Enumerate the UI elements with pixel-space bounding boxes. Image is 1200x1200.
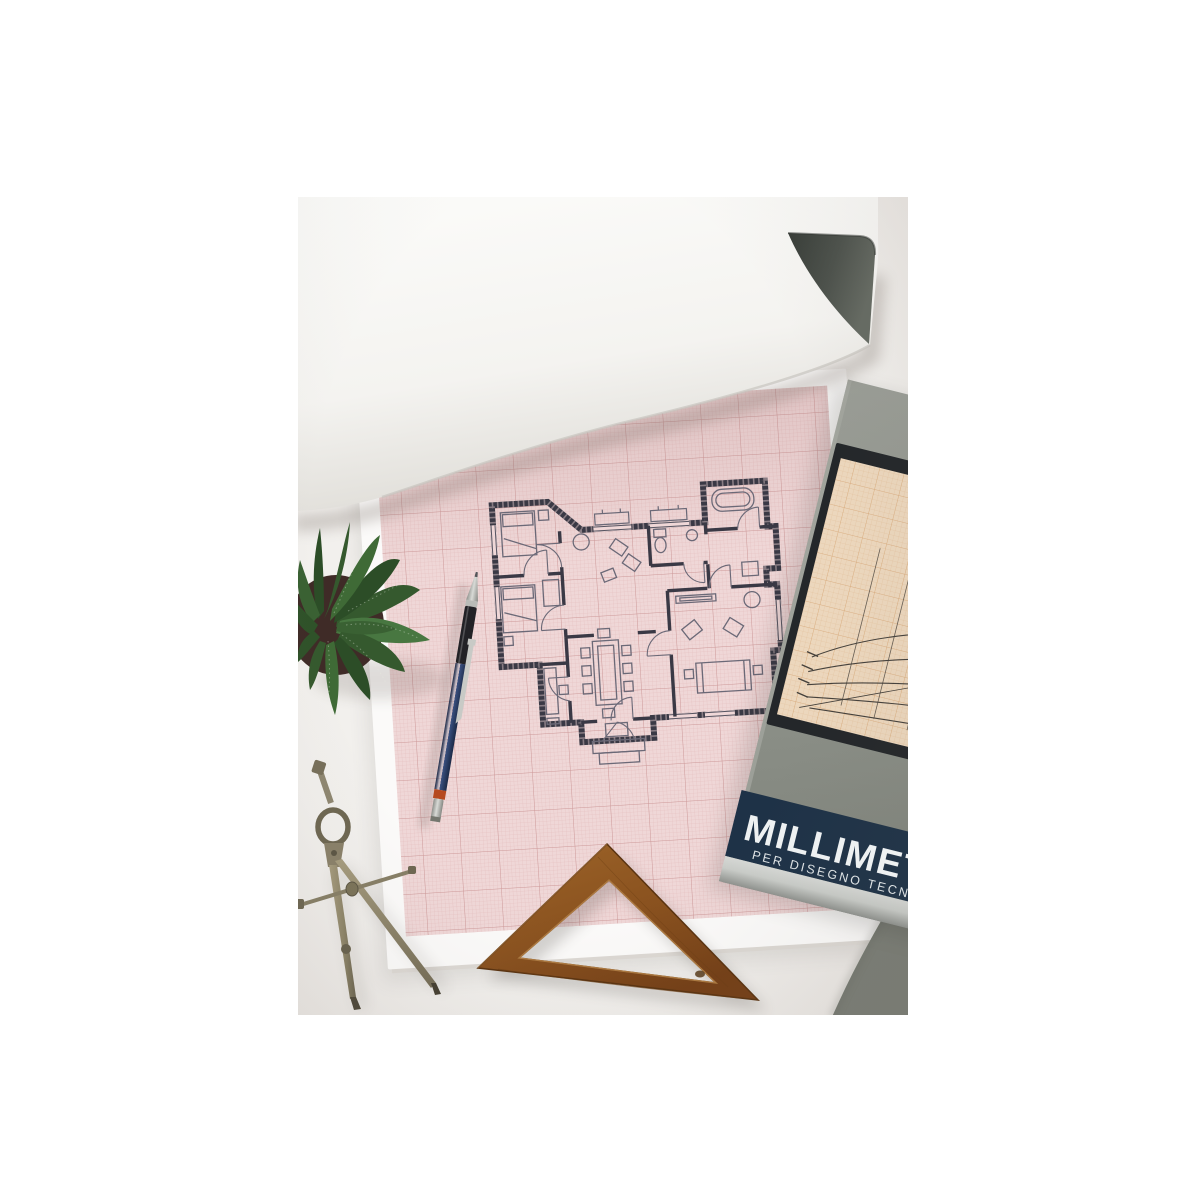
photo-scene <box>298 197 908 1015</box>
desk-photo: MILLIMETR PER DISEGNO TECNICO <box>298 197 908 1015</box>
wood-knot <box>695 971 705 978</box>
page-background: MILLIMETR PER DISEGNO TECNICO <box>0 0 1200 1200</box>
